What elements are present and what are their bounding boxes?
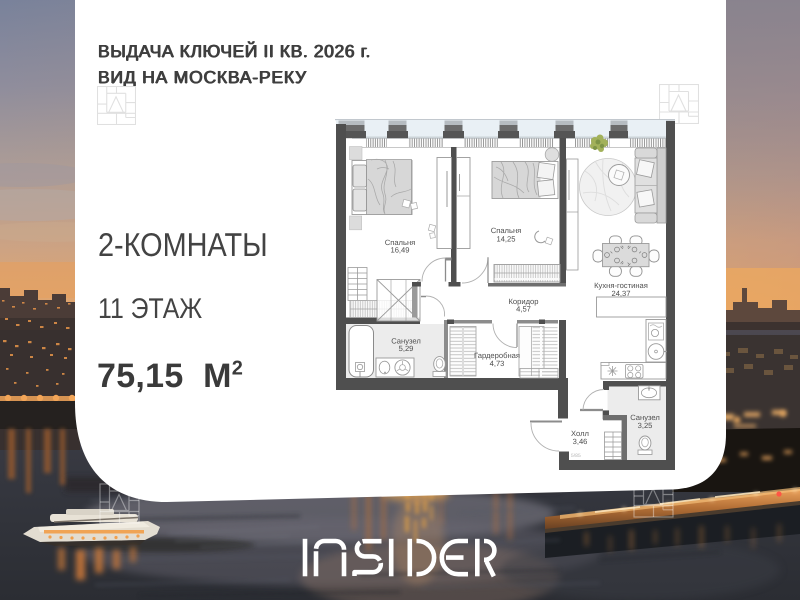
svg-text:3,25: 3,25 (638, 421, 653, 430)
svg-text:3,46: 3,46 (573, 437, 588, 446)
svg-text:5!85: 5!85 (571, 453, 581, 459)
svg-text:5,29: 5,29 (399, 344, 414, 353)
svg-text:24,37: 24,37 (611, 289, 630, 298)
svg-text:4,57: 4,57 (516, 305, 531, 314)
svg-text:4,73: 4,73 (490, 359, 505, 368)
svg-text:16,49: 16,49 (390, 246, 409, 255)
svg-text:14,25: 14,25 (496, 235, 515, 244)
